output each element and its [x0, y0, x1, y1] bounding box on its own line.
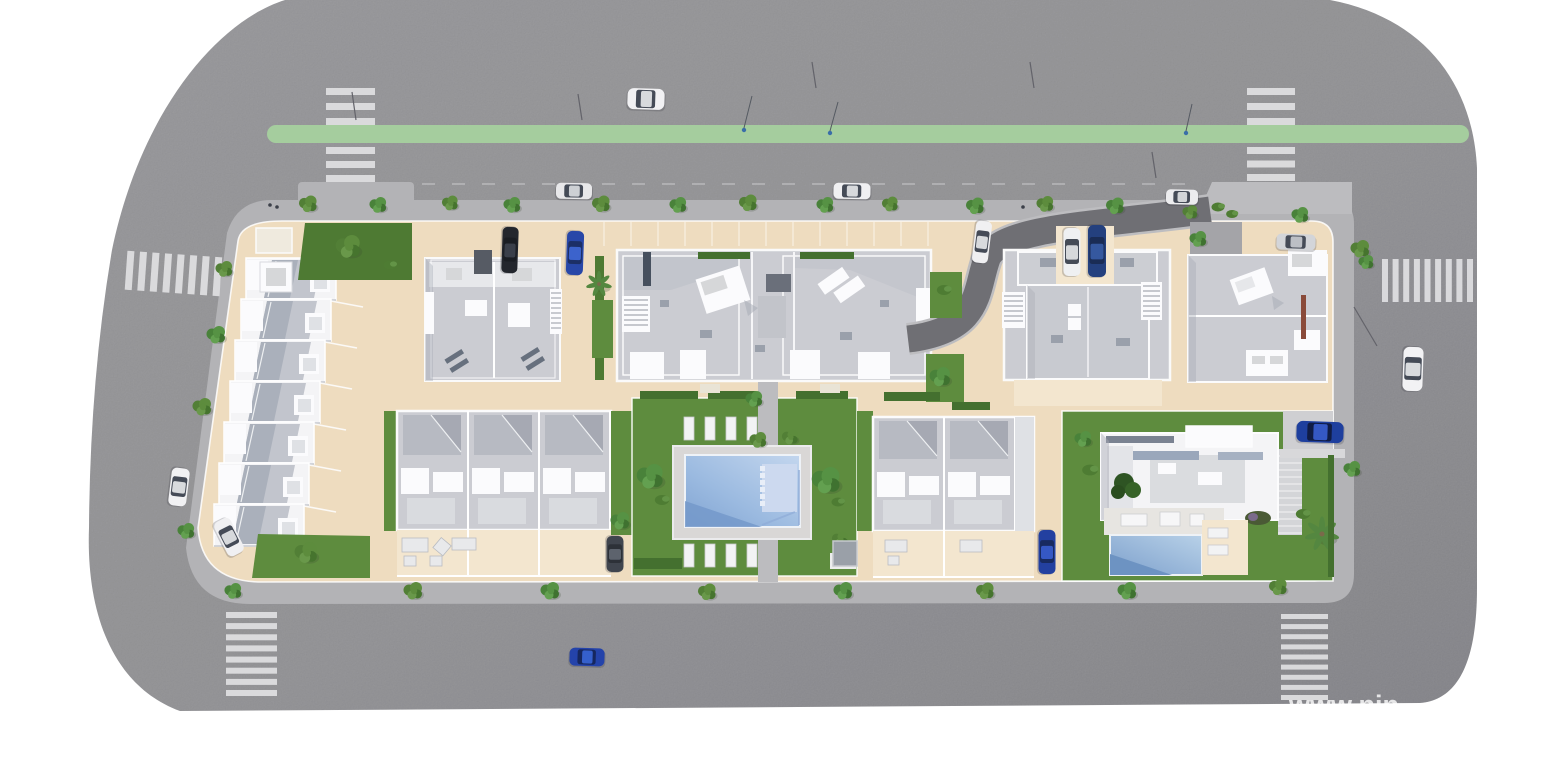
- svg-text:www.nin: www.nin: [1288, 690, 1399, 720]
